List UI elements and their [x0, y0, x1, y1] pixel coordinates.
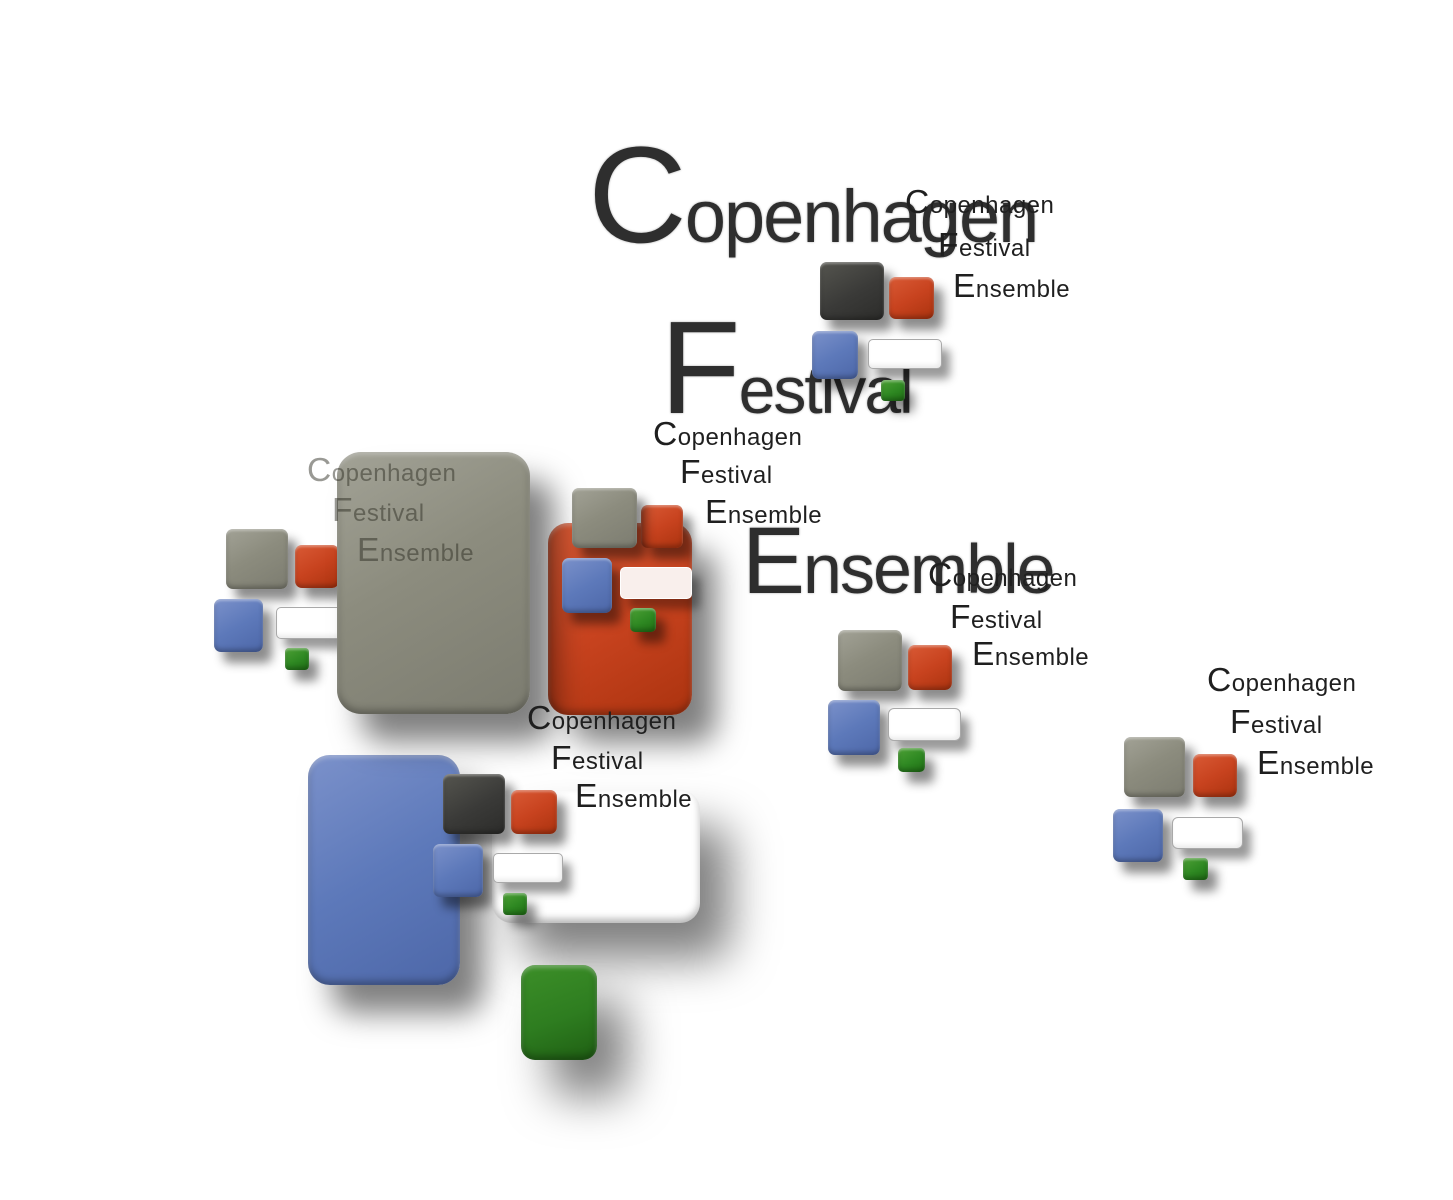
cluster-a-label-festival: Festival	[938, 229, 1031, 263]
cluster-f-red-square	[1193, 754, 1237, 797]
cluster-c-label-festival: Festival	[680, 456, 773, 490]
cluster-b-blue-square	[214, 599, 263, 652]
cluster-d-green-panel	[521, 965, 597, 1060]
cluster-a-charcoal-square	[820, 262, 884, 320]
cluster-e-label-festival: Festival	[950, 601, 1043, 635]
cluster-f-label-copenhagen: Copenhagen	[1207, 664, 1356, 698]
cluster-f-label-ensemble: Ensemble	[1257, 747, 1374, 781]
cluster-c-green-square	[630, 608, 656, 632]
cluster-c-white-tile	[620, 567, 692, 599]
cluster-a-red-square	[889, 277, 934, 319]
cluster-a-white-tile	[868, 339, 942, 369]
cluster-f-gray-square	[1124, 737, 1185, 797]
cluster-c-red-square	[641, 505, 683, 548]
cluster-f-white-tile	[1172, 817, 1243, 849]
cluster-e-white-tile	[888, 708, 961, 741]
cluster-d-green-square	[503, 893, 527, 915]
cluster-b-gray-square	[226, 529, 288, 589]
cluster-c-red-panel	[548, 523, 692, 715]
cluster-e-red-square	[908, 645, 952, 690]
cluster-b-white-tile	[276, 607, 342, 639]
cluster-a-label-copenhagen: Copenhagen	[905, 186, 1054, 220]
cluster-d-white-tile	[493, 853, 563, 883]
cluster-c-blue-square	[562, 558, 612, 613]
cluster-f-blue-square	[1113, 809, 1163, 862]
cluster-b-label-ensemble: Ensemble	[357, 534, 474, 568]
cluster-d-red-square	[511, 790, 557, 834]
cluster-e-label-copenhagen: Copenhagen	[928, 559, 1077, 593]
cluster-c-label-copenhagen: Copenhagen	[653, 418, 802, 452]
cluster-e-gray-square	[838, 630, 902, 691]
cluster-b-green-square	[285, 648, 309, 670]
cluster-a-label-ensemble: Ensemble	[953, 270, 1070, 304]
cluster-c-label-ensemble: Ensemble	[705, 496, 822, 530]
cluster-b-olive-panel	[337, 452, 530, 714]
cluster-d-blue-square	[433, 844, 483, 897]
cluster-d-label-copenhagen: Copenhagen	[527, 702, 676, 736]
cluster-f-label-festival: Festival	[1230, 706, 1323, 740]
cluster-d-label-festival: Festival	[551, 742, 644, 776]
cluster-a-blue-square	[812, 331, 858, 379]
cluster-f-green-square	[1183, 858, 1208, 880]
cluster-b-red-tile	[295, 545, 339, 588]
cluster-d-charcoal-square	[443, 774, 505, 834]
cluster-b-label-copenhagen: Copenhagen	[307, 454, 456, 488]
cluster-c-gray-square	[572, 488, 637, 548]
cluster-e-blue-square	[828, 700, 880, 755]
cluster-b-label-festival: Festival	[332, 494, 425, 528]
cluster-a-green-square	[881, 380, 905, 401]
cluster-d-label-ensemble: Ensemble	[575, 780, 692, 814]
cluster-e-label-ensemble: Ensemble	[972, 638, 1089, 672]
cluster-e-green-square	[898, 748, 925, 772]
poster-canvas: Copenhagen Festival Ensemble Copenhagen …	[0, 0, 1453, 1200]
